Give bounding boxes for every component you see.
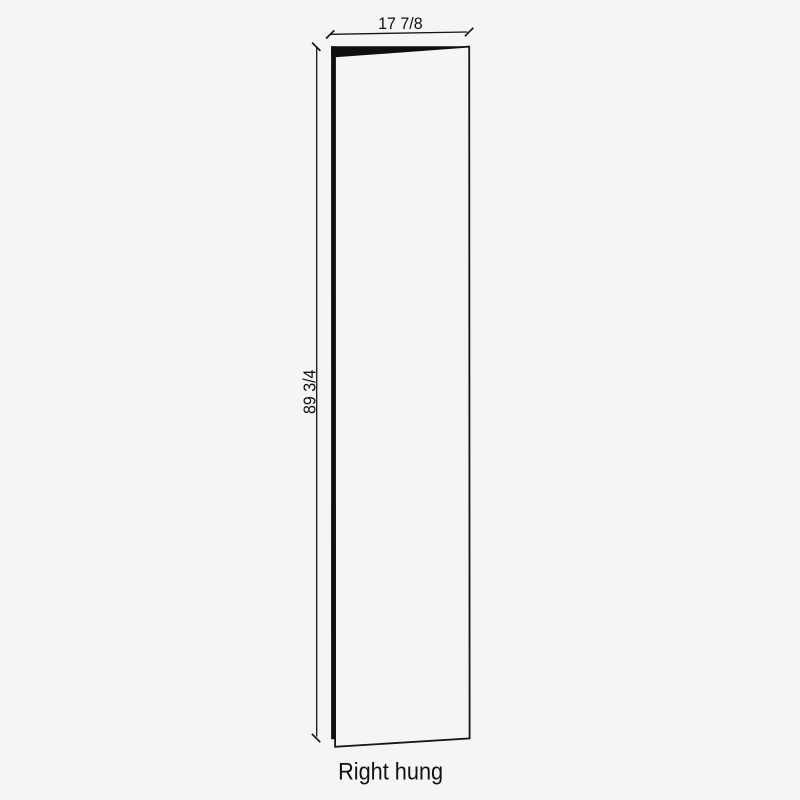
svg-text:Right hung: Right hung: [338, 759, 443, 786]
svg-text:17 7/8: 17 7/8: [378, 14, 423, 33]
svg-text:89 3/4: 89 3/4: [299, 369, 319, 414]
